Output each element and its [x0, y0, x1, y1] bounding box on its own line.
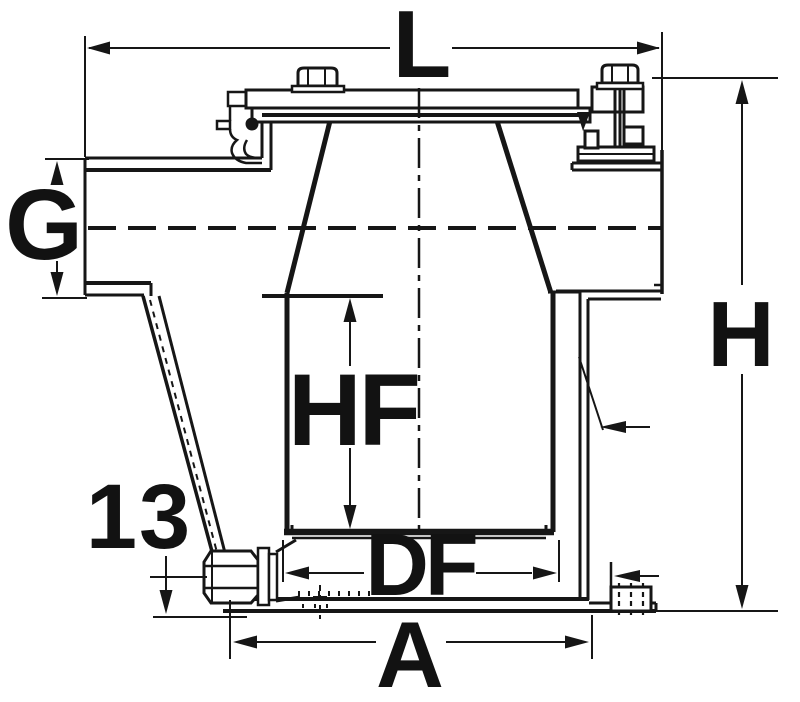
- clamp-bracket: [585, 131, 598, 148]
- arrow-down-icon: [736, 585, 749, 609]
- lid-left-block: [228, 92, 247, 106]
- lid-hook-stub: [217, 121, 230, 129]
- foot-arrow-icon: [614, 570, 640, 582]
- dimension-HF: HF: [288, 298, 418, 529]
- arrow-left-icon: [285, 567, 309, 580]
- lid-assembly: [217, 90, 590, 163]
- bolt-hole-centermark: [313, 585, 327, 619]
- foot-callout: [614, 570, 659, 582]
- dimension-G: G: [5, 159, 89, 298]
- drain-plug-washer: [258, 548, 269, 605]
- arrow-right-icon: [533, 567, 557, 580]
- dim-label-filter-diameter: DF: [365, 515, 476, 614]
- dim-label-inlet-port: G: [5, 169, 83, 281]
- clamp-bolt-washer: [597, 83, 643, 89]
- drain-plug-boss: [269, 554, 277, 600]
- arrow-down-icon: [344, 505, 357, 529]
- arrow-left-icon: [233, 636, 257, 649]
- lid-catch-pin: [246, 118, 258, 130]
- wall-arrow-icon: [600, 421, 626, 433]
- arrow-up-icon: [344, 298, 357, 322]
- housing-right-wall: [556, 150, 662, 600]
- dim-label-overall-height: H: [707, 282, 774, 386]
- strainer-technical-drawing: L G H HF DF: [0, 0, 800, 702]
- arrow-right-icon: [565, 636, 589, 649]
- bolt-head: [298, 68, 337, 86]
- mounting-foot: [611, 562, 651, 615]
- lid-bolt-left: [292, 68, 344, 92]
- arrow-right-icon: [637, 42, 660, 55]
- arrow-down-icon: [160, 590, 173, 614]
- dimension-A: A: [230, 600, 592, 702]
- bolt-washer: [292, 86, 344, 92]
- arrow-left-icon: [87, 42, 110, 55]
- dimension-H: H: [652, 78, 778, 611]
- dim-label-base-width: A: [376, 602, 444, 702]
- drain-plug: [204, 540, 300, 605]
- clamp-bolt-head: [602, 65, 638, 83]
- dim-label-overall-width: L: [393, 0, 452, 98]
- clamp-lower-tab: [624, 127, 643, 144]
- dimension-L: L: [85, 0, 662, 157]
- clamp-assembly: [572, 65, 661, 170]
- strainer-cross-section-svg: L G H HF DF: [0, 0, 800, 702]
- clamp-upper-block: [592, 87, 643, 112]
- foot-boss: [611, 587, 651, 611]
- dim-label-filter-height: HF: [288, 353, 418, 467]
- wall-thickness-callout: [579, 357, 650, 433]
- dim-label-drain-offset: 13: [86, 466, 192, 568]
- arrow-up-icon: [736, 80, 749, 104]
